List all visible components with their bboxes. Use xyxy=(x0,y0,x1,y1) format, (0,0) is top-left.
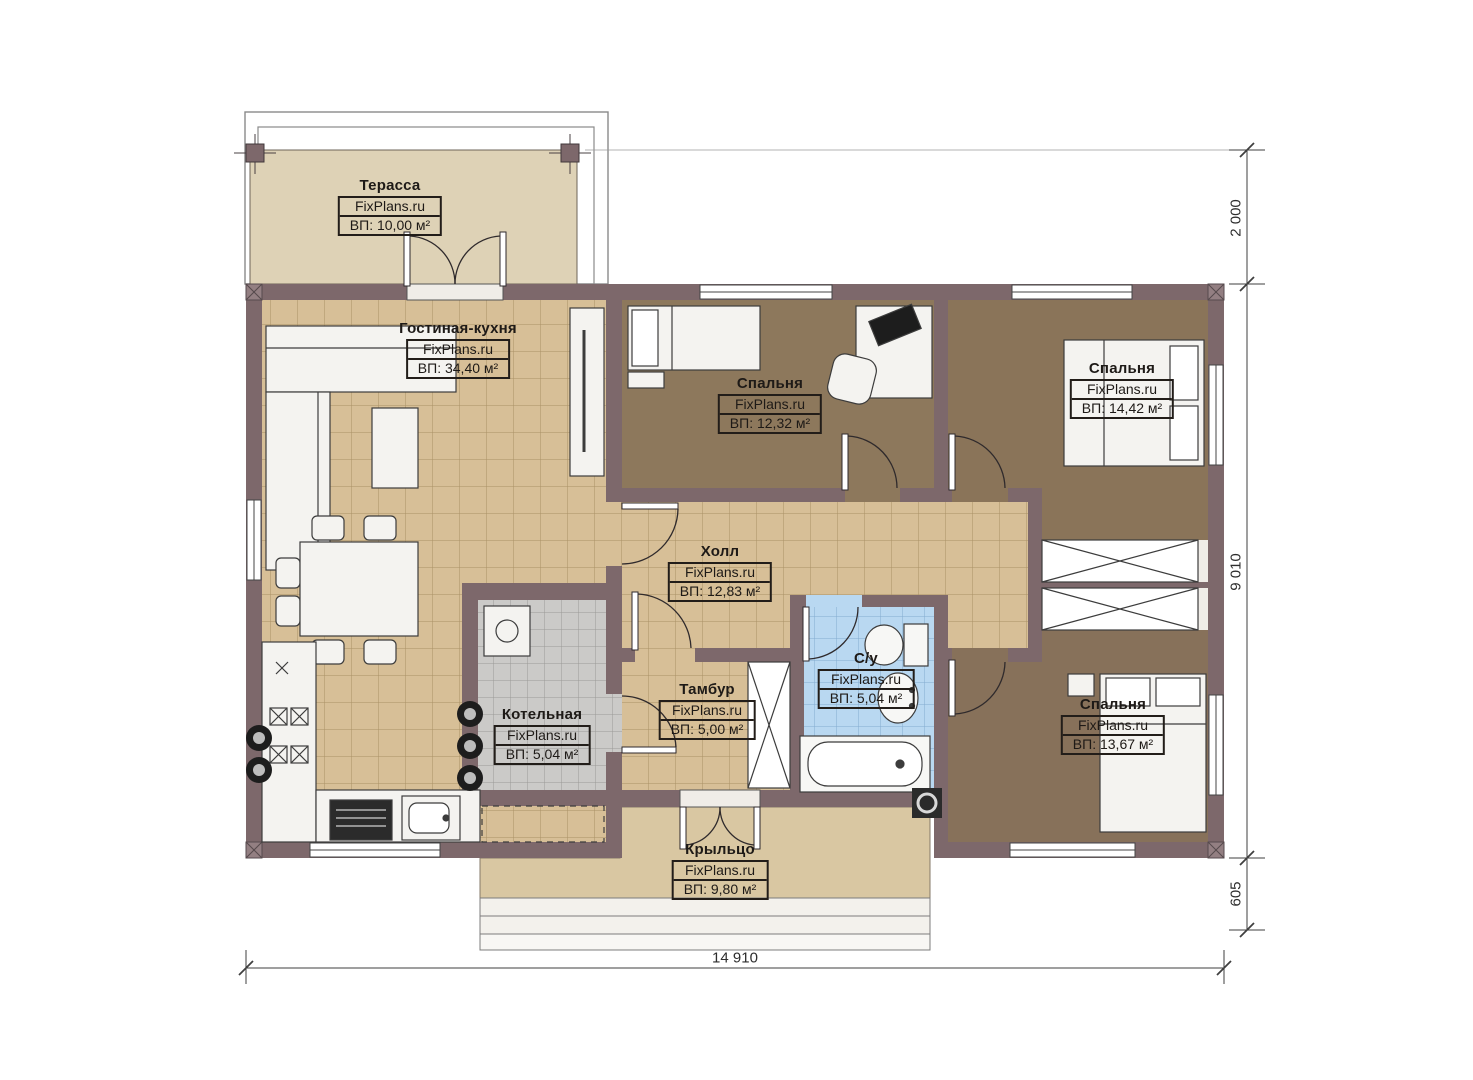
room-name: Спальня xyxy=(1061,696,1165,713)
room-area: ВП: 5,04 м² xyxy=(820,690,913,707)
window xyxy=(1012,285,1132,299)
window xyxy=(1010,843,1135,857)
brand-watermark: FixPlans.ru xyxy=(674,862,767,881)
room-area: ВП: 9,80 м² xyxy=(674,881,767,898)
room-area: ВП: 14,42 м² xyxy=(1072,400,1172,417)
room-area: ВП: 5,00 м² xyxy=(661,721,754,738)
room-name: Холл xyxy=(668,543,772,560)
boiler-icon xyxy=(484,606,530,656)
room-name: Терасса xyxy=(338,177,442,194)
brand-watermark: FixPlans.ru xyxy=(496,727,589,746)
room-name: Тамбур xyxy=(659,681,756,698)
window xyxy=(1209,365,1223,465)
coffee-table-icon xyxy=(372,408,418,488)
window xyxy=(247,500,261,580)
brand-watermark: FixPlans.ru xyxy=(408,341,508,360)
room-label-bedroom-bottom-right: Спальня FixPlans.ruВП: 13,67 м² xyxy=(1061,696,1165,755)
tv-unit-icon xyxy=(570,308,604,476)
brand-watermark: FixPlans.ru xyxy=(1063,717,1163,736)
room-name: Спальня xyxy=(718,375,822,392)
window xyxy=(700,285,832,299)
dimension-label-house-width: 14 910 xyxy=(712,950,758,967)
room-label-living-kitchen: Гостиная-кухня FixPlans.ruВП: 34,40 м² xyxy=(399,320,517,379)
brand-watermark: FixPlans.ru xyxy=(670,564,770,583)
brand-watermark: FixPlans.ru xyxy=(820,671,913,690)
room-label-bathroom: С/у FixPlans.ruВП: 5,04 м² xyxy=(818,650,915,709)
room-label-porch: Крыльцо FixPlans.ruВП: 9,80 м² xyxy=(672,841,769,900)
room-area: ВП: 10,00 м² xyxy=(340,217,440,234)
dimension-label-terrace-depth: 2 000 xyxy=(1228,199,1245,237)
room-name: Крыльцо xyxy=(672,841,769,858)
dimension-label-porch-depth: 605 xyxy=(1228,881,1245,906)
room-label-bedroom-top-right: Спальня FixPlans.ruВП: 14,42 м² xyxy=(1070,360,1174,419)
floor-plan-canvas: Терасса FixPlans.ruВП: 10,00 м² Гостиная… xyxy=(0,0,1473,1080)
room-name: Гостиная-кухня xyxy=(399,320,517,337)
brand-watermark: FixPlans.ru xyxy=(1072,381,1172,400)
floor-plan-drawing xyxy=(0,0,1473,1080)
dimension-label-house-depth: 9 010 xyxy=(1228,553,1245,591)
brand-watermark: FixPlans.ru xyxy=(661,702,754,721)
brand-watermark: FixPlans.ru xyxy=(340,198,440,217)
room-label-boiler: Котельная FixPlans.ruВП: 5,04 м² xyxy=(494,706,591,765)
bathtub-icon xyxy=(800,736,930,792)
brand-watermark: FixPlans.ru xyxy=(720,396,820,415)
room-name: Котельная xyxy=(494,706,591,723)
room-label-hall: Холл FixPlans.ruВП: 12,83 м² xyxy=(668,543,772,602)
window xyxy=(310,843,440,857)
room-name: С/у xyxy=(818,650,915,667)
room-area: ВП: 12,32 м² xyxy=(720,415,820,432)
corridor-floor xyxy=(948,502,1028,648)
room-name: Спальня xyxy=(1070,360,1174,377)
room-area: ВП: 13,67 м² xyxy=(1063,736,1163,753)
room-label-terrace: Терасса FixPlans.ruВП: 10,00 м² xyxy=(338,177,442,236)
room-area: ВП: 34,40 м² xyxy=(408,360,508,377)
sink-icon xyxy=(402,796,460,840)
porch-steps xyxy=(480,898,930,950)
room-label-tambour: Тамбур FixPlans.ruВП: 5,00 м² xyxy=(659,681,756,740)
room-area: ВП: 5,04 м² xyxy=(496,746,589,763)
room-label-bedroom-center: Спальня FixPlans.ruВП: 12,32 м² xyxy=(718,375,822,434)
oven-icon xyxy=(330,800,392,840)
window xyxy=(1209,695,1223,795)
room-area: ВП: 12,83 м² xyxy=(670,583,770,600)
